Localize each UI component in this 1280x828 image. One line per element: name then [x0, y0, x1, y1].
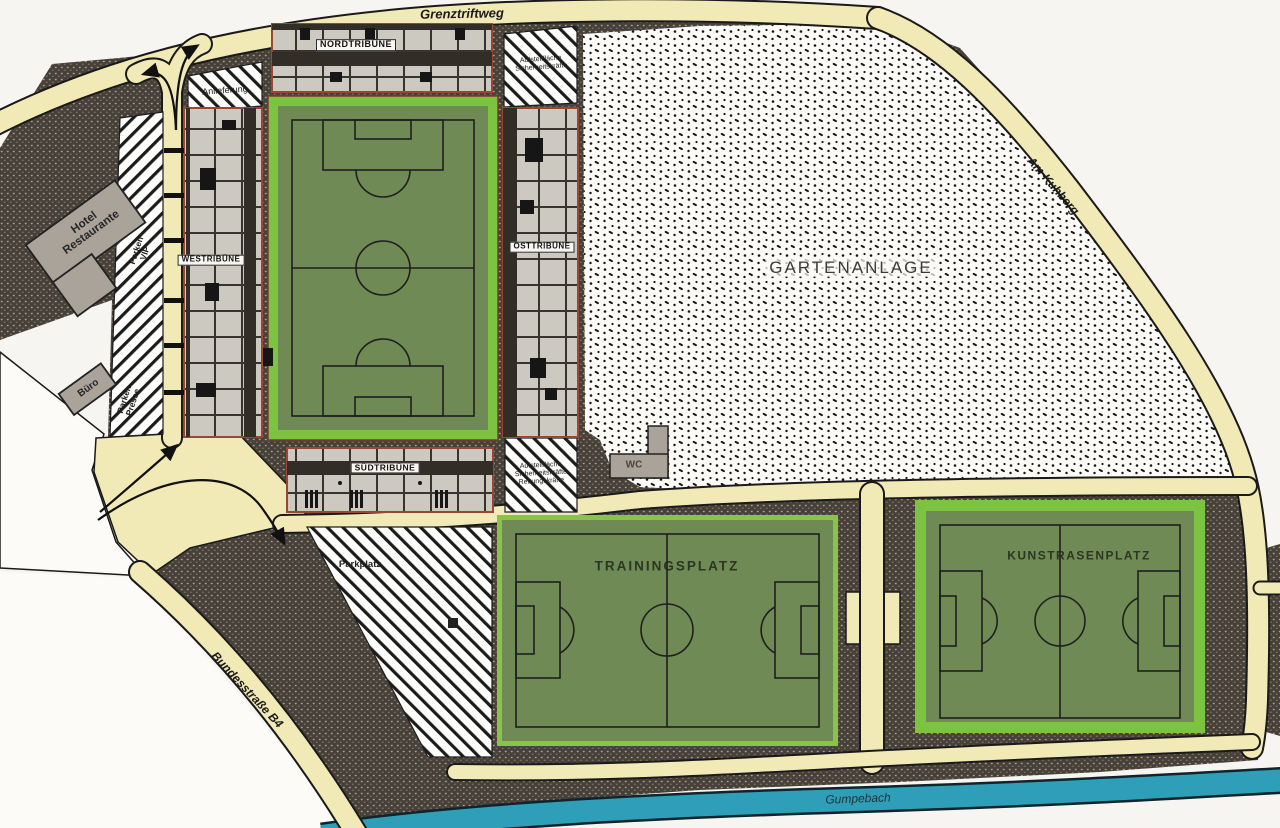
south-stand: [287, 448, 493, 512]
parking-lot-marker: [448, 618, 458, 628]
artificial-turf-pitch: [915, 500, 1205, 733]
staging-zone-north: [504, 26, 577, 107]
site-plan-map: Grenztriftweg Am Kuhberg Bundesstraße B4…: [0, 0, 1280, 828]
east-stand: [503, 108, 578, 437]
north-stand: [272, 24, 492, 92]
staging-zone-south: [505, 438, 577, 512]
stadium-pitch: [260, 96, 498, 440]
training-pitch: [497, 515, 838, 746]
site-plan-canvas: [0, 0, 1280, 828]
